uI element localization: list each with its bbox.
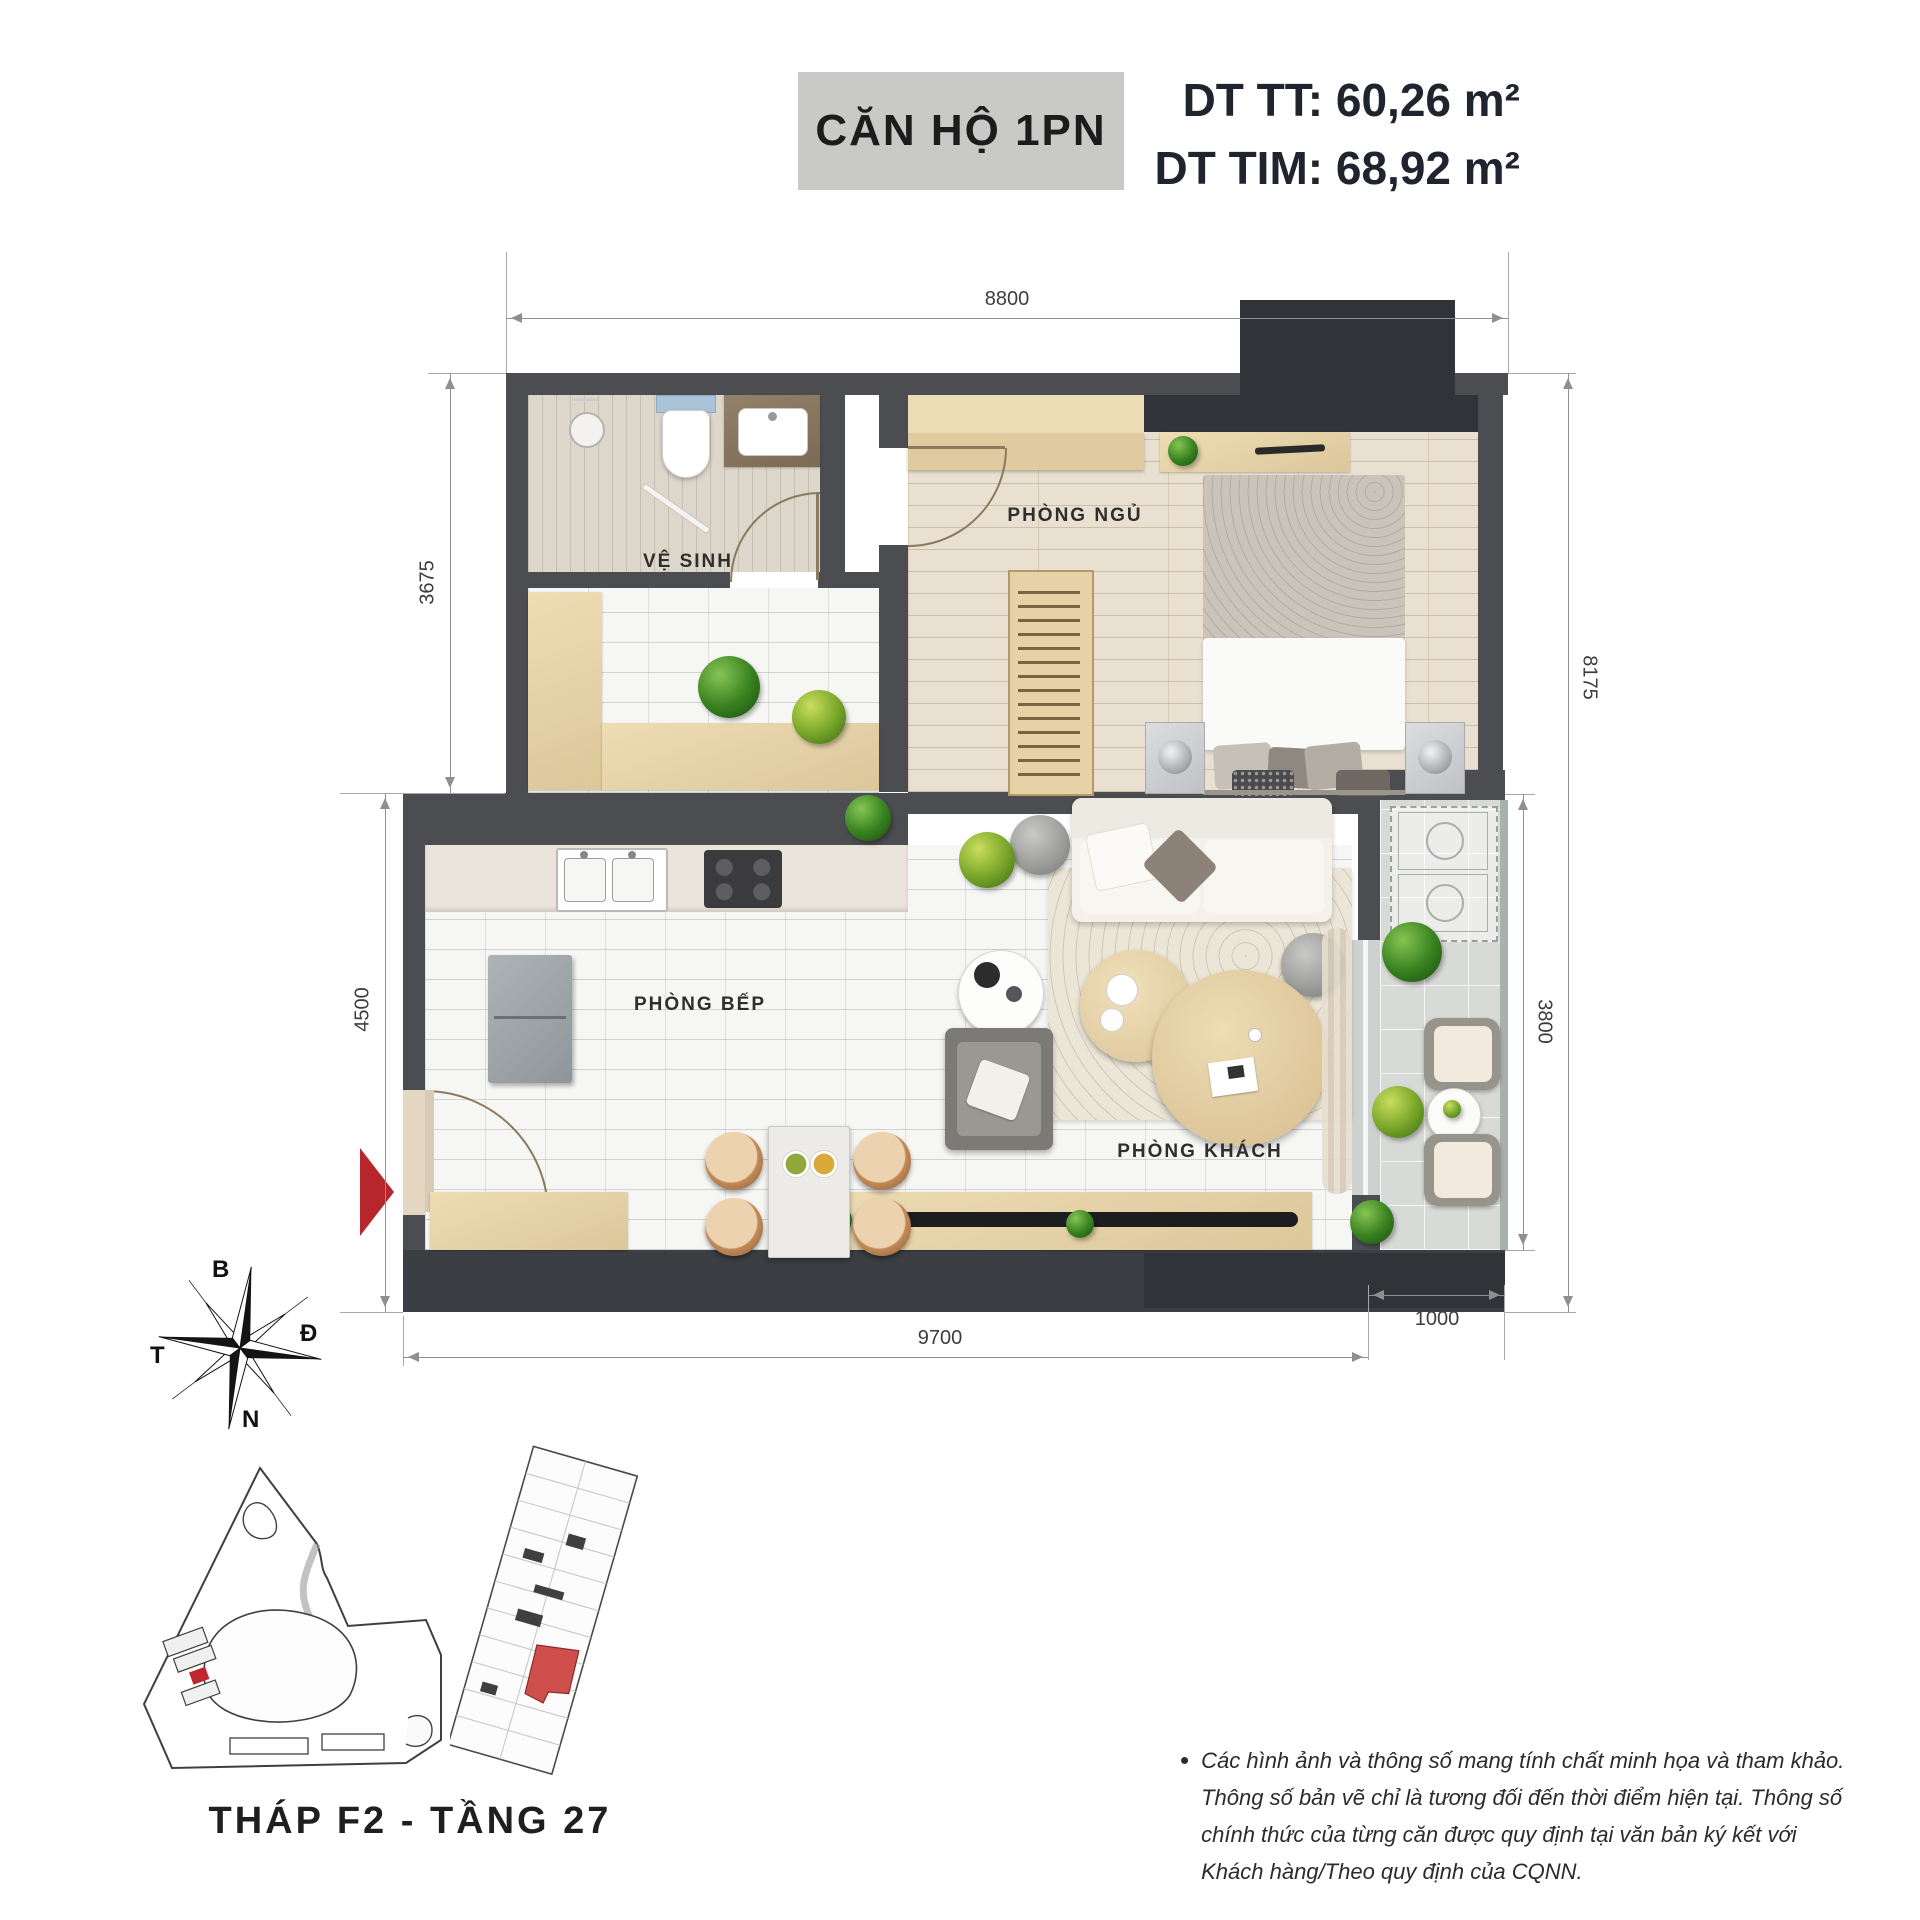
dining-chair — [853, 1132, 911, 1190]
entrance-arrow-icon — [360, 1148, 394, 1236]
bed-blanket — [1203, 475, 1405, 645]
dish-icon — [810, 1150, 838, 1178]
dish-icon — [782, 1150, 810, 1178]
balcony-plant — [1382, 922, 1442, 982]
plant — [792, 690, 846, 744]
balcony-chair-cushion — [1434, 1142, 1492, 1198]
wall-segment — [528, 572, 730, 588]
balcony-chair-cushion — [1434, 1026, 1492, 1082]
wall-segment — [403, 793, 908, 845]
wardrobe-rail-rungs — [1018, 580, 1080, 782]
plant — [698, 656, 760, 718]
dining-chair — [853, 1198, 911, 1256]
dimension-label: 1000 — [1377, 1308, 1497, 1331]
dining-table — [768, 1126, 850, 1258]
hall-cabinet — [528, 592, 602, 790]
compass-west-label: T — [150, 1342, 165, 1370]
table-decor — [1227, 1065, 1245, 1079]
dimension-line — [1568, 373, 1569, 1312]
dimension-arrow — [1352, 1352, 1368, 1362]
dimension-arrow — [1563, 1296, 1573, 1312]
bedroom-label: PHÒNG NGỦ — [1007, 505, 1142, 527]
area-tim-label: DT TIM: 68,92 m² — [1000, 134, 1520, 202]
dimension-label: 8175 — [1578, 618, 1601, 738]
balcony-table-plant — [1443, 1100, 1461, 1118]
compass-south-label: N — [242, 1406, 259, 1434]
bathroom-door-leaf — [816, 492, 819, 580]
dimension-tick — [1508, 252, 1509, 373]
console-plant — [1066, 1210, 1094, 1238]
faucet-icon — [628, 851, 636, 859]
bed-duvet — [1203, 638, 1405, 750]
dimension-arrow — [506, 313, 522, 323]
shoe-cabinet — [430, 1192, 628, 1250]
table-cup — [1248, 1028, 1262, 1042]
fridge-divider — [494, 1016, 566, 1019]
site-plan-map — [110, 1450, 450, 1790]
wall-segment — [879, 545, 908, 792]
balcony-rail — [1500, 800, 1508, 1250]
dimension-line — [385, 793, 386, 1312]
dining-chair — [705, 1132, 763, 1190]
tower-floorplate-map — [450, 1438, 640, 1788]
area-tt-label: DT TT: 60,26 m² — [1000, 66, 1520, 134]
curtain — [1322, 928, 1352, 1194]
dimension-label: 8800 — [947, 288, 1067, 311]
shower-head-icon — [569, 412, 605, 448]
side-table-cup — [974, 962, 1000, 988]
headboard — [1203, 790, 1405, 795]
ac-unit-fan-blade — [1426, 822, 1464, 860]
dimension-line — [450, 373, 451, 793]
pouf — [1010, 815, 1070, 875]
bathroom-label: VỆ SINH — [643, 551, 733, 573]
dimension-arrow — [445, 777, 455, 793]
dining-chair — [705, 1198, 763, 1256]
balcony-window-glass — [1363, 940, 1368, 1195]
compass-north-label: B — [212, 1256, 229, 1284]
dimension-label: 9700 — [880, 1327, 1000, 1350]
kitchen-label: PHÒNG BẾP — [634, 994, 766, 1016]
wall-segment — [818, 572, 879, 588]
plant — [959, 832, 1015, 888]
dimension-arrow — [445, 373, 455, 389]
dimension-line — [403, 1357, 1368, 1358]
cooktop-icon — [704, 850, 782, 908]
sink-bowl-right — [612, 858, 654, 902]
compass-rose-icon — [140, 1248, 340, 1448]
dimension-arrow — [403, 1352, 419, 1362]
tower-floor-label: THÁP F2 - TẦNG 27 — [150, 1800, 670, 1843]
ac-unit-fan-blade — [1426, 884, 1464, 922]
dimension-line — [1523, 794, 1524, 1250]
wall-segment — [879, 395, 908, 448]
dimension-label: 3800 — [1533, 962, 1556, 1082]
dimension-arrow — [1368, 1290, 1384, 1300]
living-label: PHÒNG KHÁCH — [1117, 1141, 1283, 1163]
wall-segment — [506, 395, 528, 793]
faucet-icon — [580, 851, 588, 859]
disclaimer-bullet: • — [1180, 1742, 1189, 1890]
wall-segment — [403, 845, 425, 1090]
nightstand-lamp-icon — [1418, 740, 1452, 774]
wall-segment — [1144, 395, 1478, 432]
disclaimer-line: Thông số bản vẽ chỉ là tương đối đến thờ… — [1201, 1779, 1844, 1816]
dimension-label: 4500 — [352, 950, 375, 1070]
table-plate — [1100, 1008, 1124, 1032]
dimension-tick — [340, 793, 505, 794]
dimension-tick — [1505, 1312, 1576, 1313]
wall-segment — [1144, 1253, 1505, 1308]
dimension-arrow — [1489, 1290, 1505, 1300]
dimension-arrow — [1492, 313, 1508, 323]
disclaimer-line: Khách hàng/Theo quy định của CQNN. — [1201, 1853, 1844, 1890]
side-table-cup — [1006, 986, 1022, 1002]
wardrobe-top — [908, 395, 1144, 433]
toilet-icon — [662, 410, 710, 478]
wall-segment — [1358, 792, 1380, 940]
shower-arm-icon — [572, 398, 598, 401]
dimension-arrow — [1563, 373, 1573, 389]
dimension-arrow — [380, 1296, 390, 1312]
disclaimer-line: Các hình ảnh và thông số mang tính chất … — [1201, 1742, 1844, 1779]
disclaimer: • Các hình ảnh và thông số mang tính chấ… — [1180, 1742, 1844, 1890]
dimension-arrow — [1518, 794, 1528, 810]
dimension-label: 3675 — [417, 523, 440, 643]
wall-segment — [820, 395, 845, 572]
dimension-line — [1368, 1295, 1505, 1296]
plant — [845, 795, 891, 841]
sofa-seat — [1204, 840, 1324, 914]
entry-threshold — [403, 1090, 425, 1215]
dimension-tick — [1505, 1250, 1535, 1251]
compass-east-label: Đ — [300, 1320, 317, 1348]
side-table — [958, 950, 1044, 1036]
sink-bowl-left — [564, 858, 606, 902]
wall-segment — [1478, 395, 1503, 770]
dimension-tick — [340, 1312, 403, 1313]
bedroom-door-leaf — [908, 446, 1005, 449]
balcony-plant — [1350, 1200, 1394, 1244]
wall-segment — [1240, 300, 1455, 395]
table-plate — [1106, 974, 1138, 1006]
fridge — [488, 955, 572, 1083]
balcony-plant — [1372, 1086, 1424, 1138]
dimension-line — [506, 318, 1508, 319]
floorplan-page: CĂN HỘ 1PN DT TT: 60,26 m² DT TIM: 68,92… — [0, 0, 1920, 1920]
sink-faucet-icon — [768, 412, 777, 421]
disclaimer-line: chính thức của từng căn được quy định tạ… — [1201, 1816, 1844, 1853]
nightstand-lamp-icon — [1158, 740, 1192, 774]
shelf-plant — [1168, 436, 1198, 466]
dimension-arrow — [380, 793, 390, 809]
area-info: DT TT: 60,26 m² DT TIM: 68,92 m² — [1000, 66, 1520, 202]
dimension-tick — [428, 373, 506, 374]
dimension-arrow — [1518, 1234, 1528, 1250]
